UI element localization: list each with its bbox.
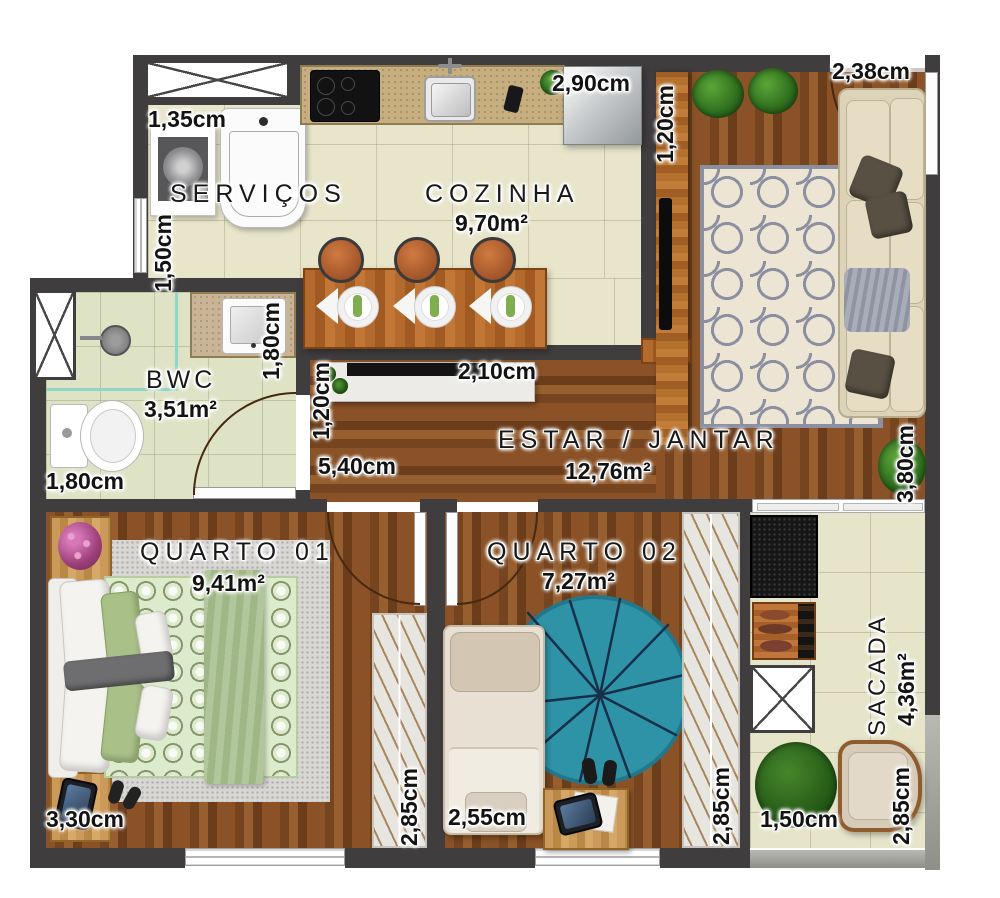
room-label-bwc: BWC [146, 366, 216, 395]
dim-label-estar-length: 5,40cm [318, 453, 396, 480]
entrance-door-leaf [925, 72, 938, 175]
bed2-pillow [450, 632, 540, 692]
duct-sacada-icon [750, 665, 815, 733]
grill-meat [760, 610, 790, 620]
area-label-cozinha: 9,70m² [455, 210, 528, 237]
area-label-quarto1: 9,41m² [192, 570, 265, 597]
dim-label-sacada-depth: 2,85cm [888, 767, 915, 845]
dim-label-quarto1-width: 3,30cm [46, 806, 124, 833]
toilet-seat [90, 409, 136, 463]
garnish [353, 295, 362, 317]
shower-head-icon [100, 325, 131, 356]
sofa [838, 88, 926, 418]
burner [317, 98, 335, 116]
laundry-tank [220, 108, 306, 228]
stool [318, 237, 364, 283]
wall-right-sacada [925, 505, 940, 715]
tablet-screen [560, 798, 597, 829]
bed-quarto1 [46, 570, 298, 784]
wall-bottom-c [660, 848, 750, 868]
toilet [50, 400, 142, 470]
dim-label-bwc-width: 1,80cm [46, 468, 124, 495]
tank-drain [259, 117, 268, 126]
sliding-panel [757, 503, 839, 511]
skewer-handles [798, 604, 814, 658]
dim-label-entrance: 2,38cm [832, 58, 910, 85]
dim-label-bwc-counter: 1,80cm [258, 302, 285, 380]
room-label-cozinha: COZINHA [425, 180, 580, 209]
window-servicos-left [134, 198, 147, 273]
shower-arm [80, 336, 102, 340]
grill-meat [760, 640, 792, 652]
dim-label-sacada-width: 1,50cm [760, 806, 838, 833]
plate [414, 286, 456, 328]
dim-label-servicos-tank: 1,35cm [148, 106, 226, 133]
window-quarto2 [535, 848, 660, 866]
living-plant [748, 68, 798, 114]
wall-divider-sacada [740, 512, 750, 848]
area-label-estar: 12,76m² [565, 458, 651, 485]
wall-bottom-b [345, 848, 535, 868]
burner [317, 77, 335, 95]
tv [659, 198, 672, 330]
kitchen-sink [424, 76, 476, 122]
railing-bottom-sacada [750, 850, 925, 868]
wall-mid-b [420, 499, 457, 512]
plate [337, 286, 379, 328]
faucet-icon [438, 58, 462, 76]
faucet-neck [448, 58, 452, 74]
grill-meat [758, 624, 792, 634]
wall-bottom-a [30, 848, 185, 868]
cooktop [310, 70, 380, 122]
sink-basin [431, 83, 471, 117]
room-label-quarto2: QUARTO 02 [487, 538, 682, 567]
window-bwc-icon [33, 290, 76, 380]
burner [341, 101, 355, 115]
plate [490, 286, 532, 328]
sacada-counter [750, 515, 818, 598]
burner [341, 77, 355, 91]
dim-label-quarto1-closet: 2,85cm [396, 768, 423, 846]
dim-label-cozinha-width: 2,90cm [552, 70, 630, 97]
area-label-bwc: 3,51m² [144, 396, 217, 423]
wall-mid-a [30, 499, 327, 512]
sofa-pillow [864, 190, 914, 240]
room-label-quarto1: QUARTO 01 [140, 538, 335, 567]
stool [394, 237, 440, 283]
floor-plan: SERVIÇOS COZINHA 9,70m² ESTAR / JANTAR 1… [0, 0, 1000, 898]
dim-label-servicos-depth: 1,50cm [150, 214, 177, 292]
window-quarto1 [185, 848, 345, 866]
wall-mid-c [538, 499, 752, 512]
dim-label-living-entry: 1,20cm [652, 85, 679, 163]
garnish [430, 295, 439, 317]
dim-label-hall-width: 1,20cm [308, 362, 335, 440]
sofa-pillow [844, 348, 896, 400]
dim-label-quarto2-width: 2,55cm [448, 804, 526, 831]
room-label-estar: ESTAR / JANTAR [498, 426, 780, 455]
railing-right-sacada [925, 715, 940, 870]
sofa-blanket [844, 268, 910, 332]
wall-top-living [653, 55, 830, 72]
throw-blanket [204, 570, 264, 784]
dim-label-quarto2-closet: 2,85cm [708, 767, 735, 845]
stool [470, 237, 516, 283]
room-label-servicos: SERVIÇOS [170, 180, 347, 209]
dim-label-living-depth: 3,80cm [892, 425, 919, 503]
living-plant [692, 70, 744, 118]
flowers-icon [58, 522, 102, 570]
grill [752, 602, 816, 660]
window-servicos-icon [145, 60, 290, 100]
dim-label-sideboard: 2,10cm [458, 358, 536, 385]
garnish [506, 295, 515, 317]
area-label-sacada: 4,36m² [893, 653, 920, 726]
sliding-panel [843, 503, 923, 511]
area-label-quarto2: 7,27m² [542, 568, 615, 595]
room-label-sacada: SACADA [864, 613, 892, 736]
toilet-button [62, 428, 72, 438]
bwc-drain [251, 343, 256, 348]
